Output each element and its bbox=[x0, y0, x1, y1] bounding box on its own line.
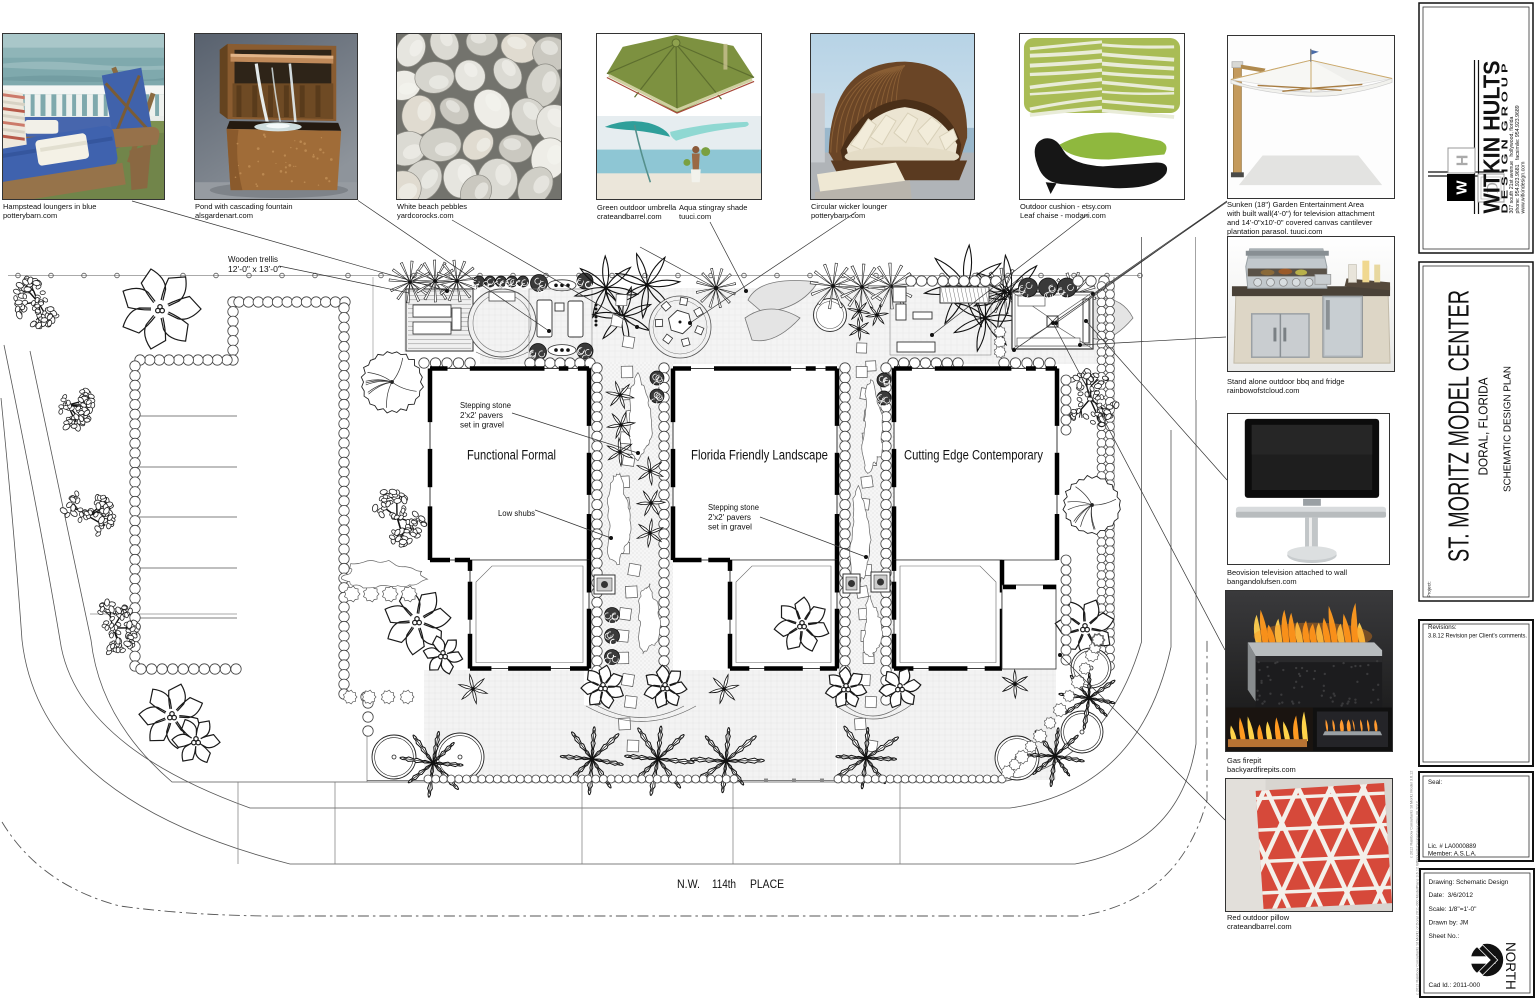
svg-text:Project:: Project: bbox=[1427, 581, 1433, 597]
svg-text:Date: 3/6/2012: Date: 3/6/2012 bbox=[1429, 892, 1474, 899]
svg-text:c 2012 Rainbow Consultants St: c 2012 Rainbow Consultants St Moritz of … bbox=[1416, 801, 1420, 995]
svg-text:Member: A.S.L.A.: Member: A.S.L.A. bbox=[1428, 851, 1477, 858]
svg-text:Seal:: Seal: bbox=[1428, 779, 1442, 786]
svg-text:DORAL, FLORIDA: DORAL, FLORIDA bbox=[1477, 377, 1491, 476]
svg-text:Revisions:: Revisions: bbox=[1428, 624, 1457, 631]
svg-text:www.witkindesign.com: www.witkindesign.com bbox=[1521, 162, 1527, 214]
svg-text:Cad Id.: 2011-000: Cad Id.: 2011-000 bbox=[1429, 982, 1481, 989]
svg-text:H: H bbox=[1455, 155, 1472, 167]
svg-text:Scale: 1/8"=1'-0": Scale: 1/8"=1'-0" bbox=[1429, 906, 1478, 913]
svg-text:3.8.12 Revision per Client's c: 3.8.12 Revision per Client's comments. bbox=[1428, 633, 1527, 640]
svg-text:SCHEMATIC DESIGN PLAN: SCHEMATIC DESIGN PLAN bbox=[1503, 366, 1514, 492]
svg-text:NORTH: NORTH bbox=[1503, 942, 1518, 990]
svg-text:Lic. # LA0000889: Lic. # LA0000889 bbox=[1428, 843, 1477, 850]
svg-text:W: W bbox=[1454, 180, 1471, 195]
svg-text:c 2012 Rainbow Consultants St: c 2012 Rainbow Consultants St Moritz Mod… bbox=[1410, 771, 1414, 858]
svg-text:Drawing: Schematic Design: Drawing: Schematic Design bbox=[1429, 879, 1509, 886]
svg-text:Sheet No.:: Sheet No.: bbox=[1429, 933, 1460, 940]
svg-text:ST. MORITZ MODEL CENTER: ST. MORITZ MODEL CENTER bbox=[1444, 290, 1476, 562]
svg-text:Drawn by: JM: Drawn by: JM bbox=[1429, 920, 1469, 927]
